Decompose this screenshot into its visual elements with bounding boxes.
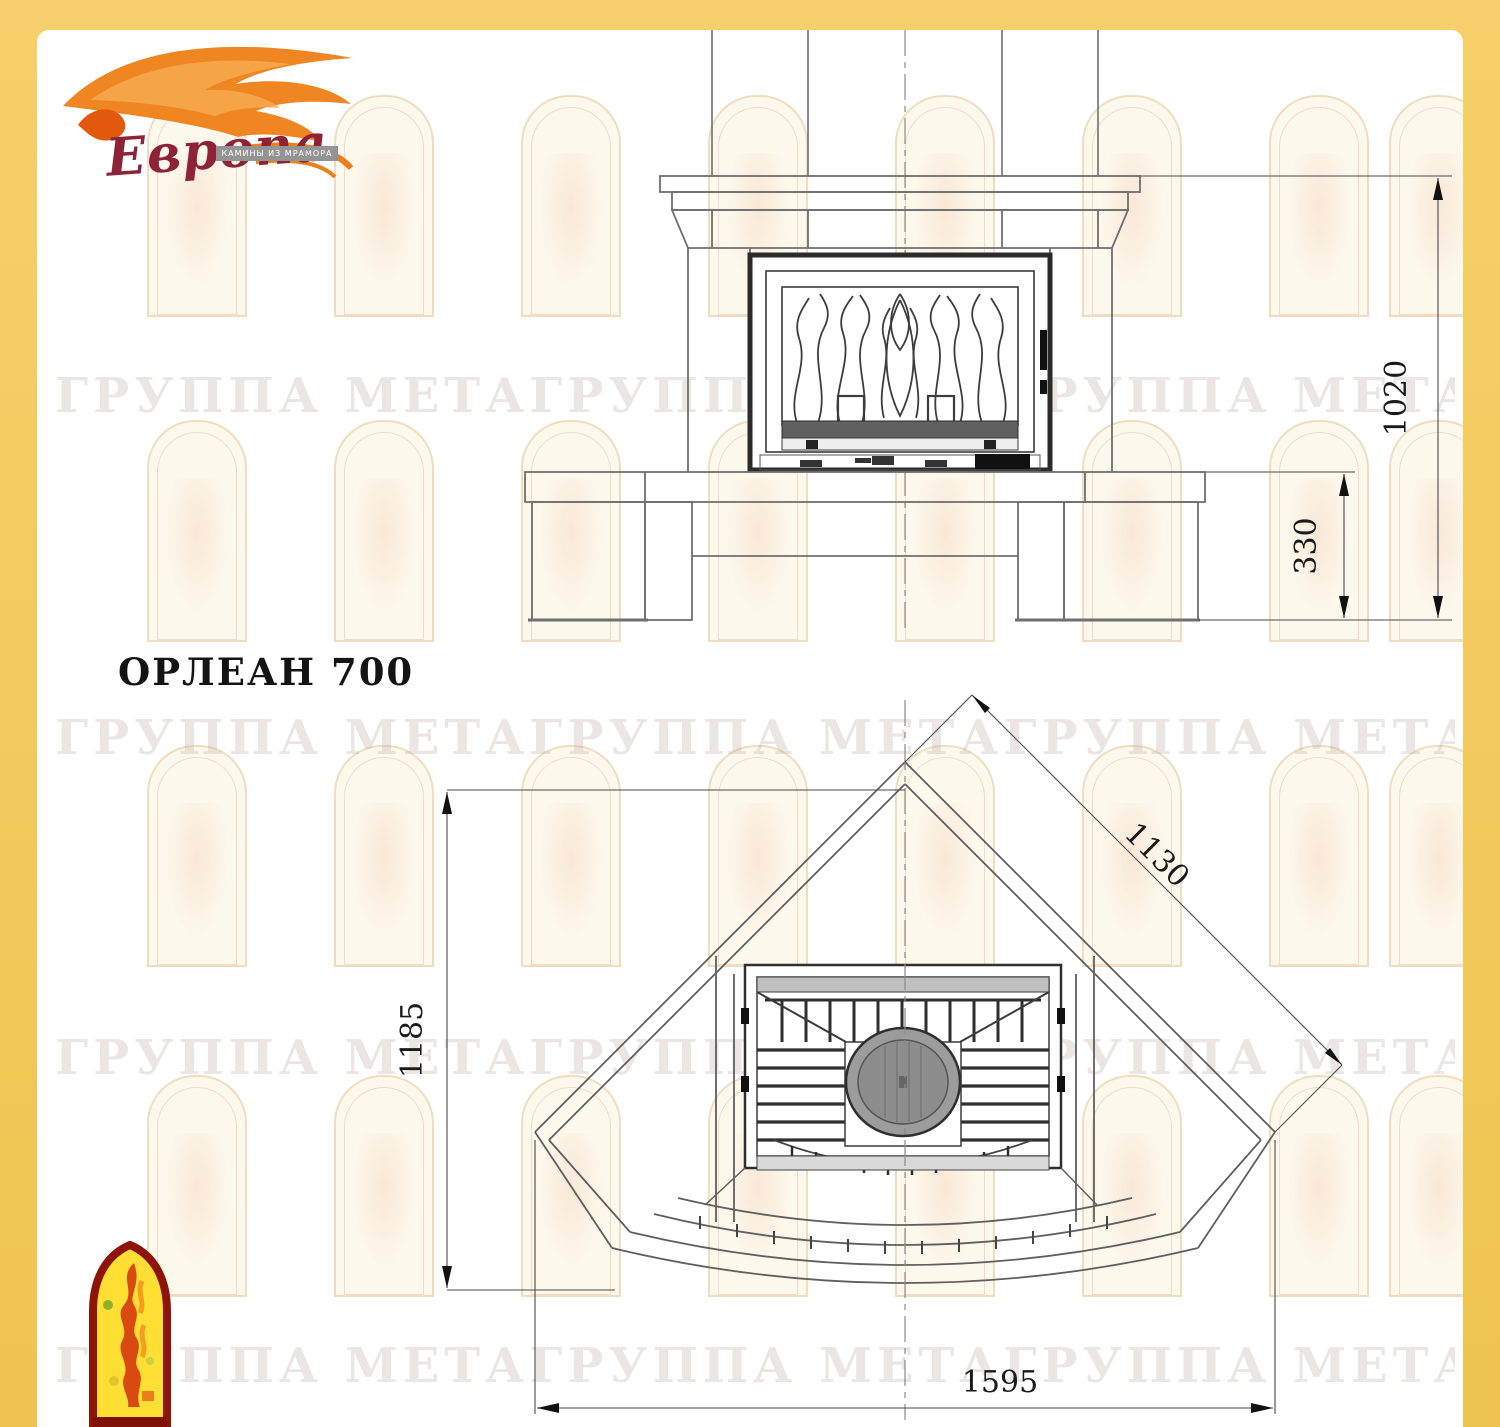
brand-logo: Европа КАМИНЫ ИЗ МРАМОРА xyxy=(48,28,378,208)
mantel-shelf xyxy=(660,176,1140,248)
page: ГРУППА МЕТАГРУППА МЕТАГРУППА МЕТАГРУППА … xyxy=(0,0,1500,1427)
brand-tagline: КАМИНЫ ИЗ МРАМОРА xyxy=(216,146,338,161)
plan-view-drawing: 1185 1130 1595 xyxy=(395,660,1405,1427)
model-title: ОРЛЕАН 700 xyxy=(118,650,414,694)
watermark-arch xyxy=(334,420,434,642)
watermark-arch xyxy=(147,420,247,642)
svg-text:1595: 1595 xyxy=(962,1365,1038,1400)
svg-text:330: 330 xyxy=(1289,517,1324,574)
hearth-base xyxy=(525,472,1205,620)
watermark-arch xyxy=(147,745,247,967)
firebird-emblem-icon xyxy=(84,1241,176,1427)
svg-text:1185: 1185 xyxy=(395,1002,430,1078)
insert-plan xyxy=(705,965,1097,1205)
firebox xyxy=(750,255,1050,470)
dimension-hearth-height: 330 xyxy=(1205,472,1355,618)
svg-text:1130: 1130 xyxy=(1117,816,1196,895)
svg-text:1020: 1020 xyxy=(1379,360,1414,436)
front-elevation-drawing: 1020 330 xyxy=(440,26,1470,632)
ash-band xyxy=(782,421,1018,438)
door-handle xyxy=(1040,330,1047,370)
